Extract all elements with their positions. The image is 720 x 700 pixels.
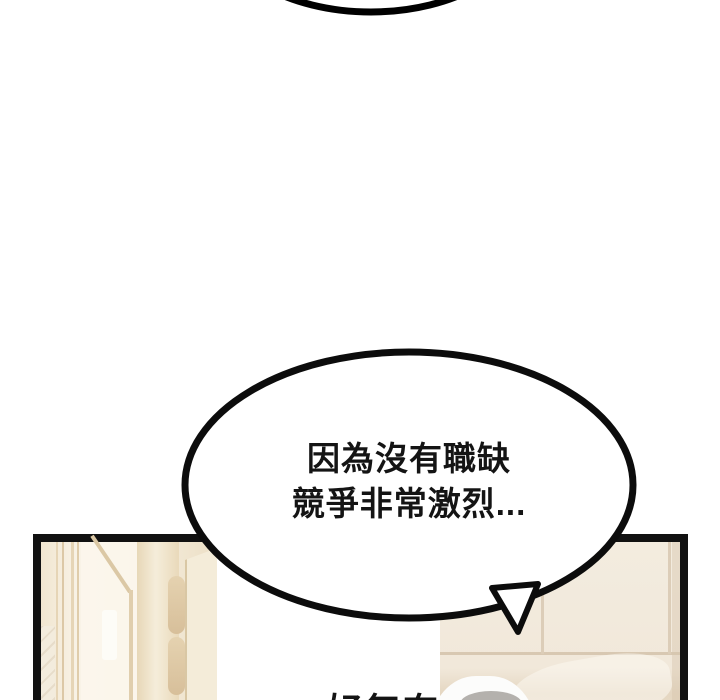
dialogue-line-2: 競爭非常激烈... bbox=[189, 481, 629, 526]
dialogue-line-1: 因為沒有職缺 bbox=[189, 436, 629, 481]
main-bubble-dialogue: 因為沒有職缺 競爭非常激烈... bbox=[189, 436, 629, 526]
top-speech-bubble-partial bbox=[211, 0, 531, 12]
comic-page: 好無奈 因為沒有職缺 競爭非常激烈... bbox=[0, 0, 720, 700]
speech-bubbles-layer bbox=[0, 0, 720, 700]
